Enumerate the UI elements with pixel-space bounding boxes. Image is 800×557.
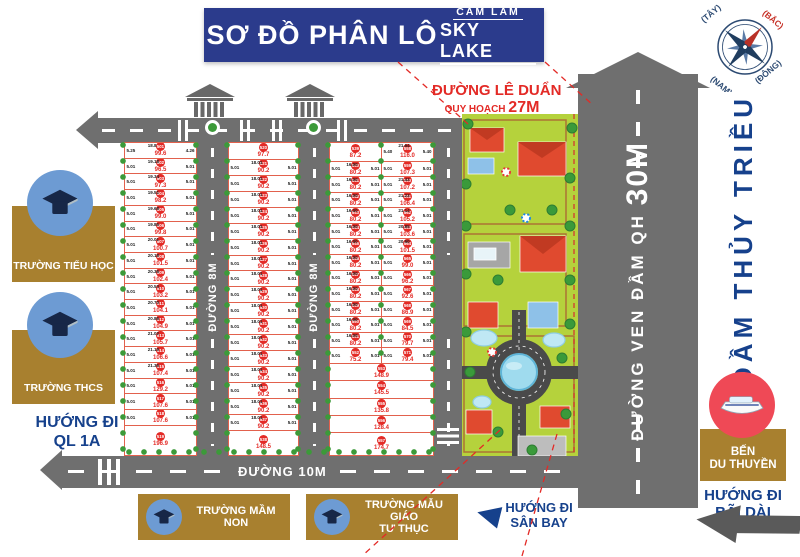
plot-row-567: 56792.65.015.01 bbox=[382, 286, 433, 302]
plot-dim-top: 18.01 bbox=[251, 320, 262, 325]
plot-badge: 554 bbox=[377, 381, 386, 390]
plot-row-521: 52190.218.015.015.01 bbox=[229, 160, 298, 176]
plot-dim-left: 5.01 bbox=[127, 384, 136, 389]
resort-area bbox=[462, 114, 578, 456]
plot-row-566: 56696.25.015.01 bbox=[382, 271, 433, 287]
plot-row-532: 53290.218.015.015.01 bbox=[229, 335, 298, 351]
plot-row-520: 52097.7 bbox=[229, 143, 298, 160]
lagoon-road-30m: ĐƯỜNG VEN ĐẦM QH 30M bbox=[578, 74, 698, 508]
plot-dim-left: 5.01 bbox=[231, 293, 240, 298]
plot-row-517: 517107.65.015.01 bbox=[125, 394, 196, 410]
tree-row-icon bbox=[324, 140, 332, 458]
graduation-cap-icon bbox=[151, 504, 177, 530]
plot-row-554: 554145.5 bbox=[330, 381, 433, 398]
le-duan-road-label: ĐƯỜNG LÊ DUẨN QUY HOẠCH 27M bbox=[432, 82, 552, 117]
plot-dim-top: 19.34 bbox=[148, 175, 159, 180]
lagoon-name: ĐẦM THỦY TRIỀU bbox=[728, 92, 759, 388]
plot-dim-top: 19.85 bbox=[148, 223, 159, 228]
plot-row-534: 53490.218.015.015.01 bbox=[229, 367, 298, 383]
plot-row-565: 56599.05.015.01 bbox=[382, 255, 433, 271]
public-building-icon bbox=[287, 84, 333, 118]
marina-icon bbox=[709, 372, 775, 438]
plot-row-511: 511104.120.705.015.01 bbox=[125, 300, 196, 316]
plot-badge: 518 bbox=[156, 410, 165, 418]
plot-block-c-bottom: 553148.9554145.5555135.8556128.4557174.7 bbox=[330, 363, 433, 455]
plot-row-531: 53190.218.015.015.01 bbox=[229, 319, 298, 335]
plot-dim-left: 5.01 bbox=[231, 246, 240, 251]
crosswalk bbox=[337, 120, 349, 141]
plot-dim-top: 21.02 bbox=[148, 332, 159, 337]
plot-row-513: 513105.721.025.015.01 bbox=[125, 331, 196, 347]
plot-row-503: 50397.319.345.015.01 bbox=[125, 174, 196, 190]
plot-dim-left: 5.01 bbox=[127, 212, 136, 217]
plot-row-558: 558116.021.645.405.40 bbox=[382, 143, 433, 162]
plot-row-551: 55180.216.005.015.01 bbox=[330, 333, 381, 349]
plot-row-553: 553148.9 bbox=[330, 364, 433, 381]
plot-dim-top: 16.00 bbox=[346, 287, 357, 292]
crosswalk bbox=[240, 120, 252, 141]
plot-dim-left: 5.01 bbox=[127, 259, 136, 264]
plot-row-527: 52790.218.015.015.01 bbox=[229, 256, 298, 272]
graduation-cap-icon bbox=[38, 181, 82, 225]
tree-row-icon bbox=[429, 140, 437, 458]
plot-row-508: 508101.520.185.015.01 bbox=[125, 253, 196, 269]
plot-dim-left: 5.01 bbox=[127, 196, 136, 201]
plot-row-547: 54780.216.005.015.01 bbox=[330, 271, 381, 287]
plot-badge: 565 bbox=[403, 255, 412, 263]
plot-dim-top: 20.53 bbox=[148, 285, 159, 290]
plot-row-529: 52990.218.015.015.01 bbox=[229, 287, 298, 303]
plot-row-544: 54480.216.005.015.01 bbox=[330, 224, 381, 240]
plot-badge: 567 bbox=[403, 286, 412, 294]
plot-dim-top: 18.01 bbox=[251, 288, 262, 293]
plot-row-539: 53987.2 bbox=[330, 143, 381, 162]
plot-block-c-left: 53987.254080.216.005.015.0154180.216.005… bbox=[330, 143, 381, 363]
plot-badge: 568 bbox=[403, 302, 412, 310]
plot-dim-top: 21.43 bbox=[398, 178, 409, 183]
kindergarten-card: TRƯỜNG MẦM NON bbox=[138, 494, 290, 540]
plot-dim-left: 5.01 bbox=[332, 198, 341, 203]
plot-dim-left: 5.01 bbox=[231, 421, 240, 426]
crosswalk bbox=[437, 428, 459, 444]
compass-south-label: (NAM) bbox=[709, 74, 735, 92]
plot-row-552: 55275.25.015.01 bbox=[330, 348, 381, 363]
plot-block-b: 52097.752190.218.015.015.0152290.218.015… bbox=[228, 142, 299, 456]
le-duan-name: ĐƯỜNG LÊ DUẨN bbox=[432, 82, 552, 99]
plot-area: 148.9 bbox=[330, 373, 433, 380]
plot-dim-left: 5.01 bbox=[231, 357, 240, 362]
plot-row-504: 50498.219.515.015.01 bbox=[125, 190, 196, 206]
brand-logo: CAM LÂM SKY LAKE bbox=[440, 6, 544, 65]
plot-row-514: 514106.621.195.015.01 bbox=[125, 347, 196, 363]
road-8m-2-label: ĐƯỜNG 8M bbox=[308, 262, 320, 331]
plot-row-502: 50296.519.185.015.01 bbox=[125, 159, 196, 175]
plot-row-568: 56886.95.015.01 bbox=[382, 302, 433, 318]
title-banner: SƠ ĐỒ PHÂN LÔ CAM LÂM SKY LAKE bbox=[204, 8, 544, 62]
airport-arrow-icon bbox=[475, 502, 503, 529]
ql1a-direction: HƯỚNG ĐI QL 1A bbox=[28, 413, 126, 451]
plot-row-562: 562105.221.145.015.01 bbox=[382, 208, 433, 224]
plot-dim-top: 19.51 bbox=[148, 191, 159, 196]
plot-dim-left: 5.01 bbox=[231, 373, 240, 378]
plot-row-550: 55080.216.005.015.01 bbox=[330, 317, 381, 333]
plot-badge: 571 bbox=[403, 348, 412, 356]
tree-row-icon bbox=[377, 140, 385, 362]
plot-dim-left: 5.01 bbox=[127, 416, 136, 421]
plot-dim-top: 18.01 bbox=[251, 336, 262, 341]
plot-row-555: 555135.8 bbox=[330, 399, 433, 416]
plot-dim-top: 21.19 bbox=[148, 348, 159, 353]
plot-dim-top: 16.00 bbox=[346, 256, 357, 261]
plot-dim-top: 20.36 bbox=[148, 270, 159, 275]
plot-dim-left: 5.01 bbox=[231, 309, 240, 314]
plot-dim-left: 5.01 bbox=[332, 167, 341, 172]
plot-dim-top: 20.86 bbox=[148, 317, 159, 322]
plot-dim-top: 18.01 bbox=[251, 257, 262, 262]
plot-dim-left: 5.25 bbox=[127, 149, 136, 154]
plot-badge: 556 bbox=[377, 416, 386, 425]
secondary-school-icon bbox=[27, 292, 93, 358]
plot-dim-top: 16.00 bbox=[346, 163, 357, 168]
plot-dim-top: 16.00 bbox=[346, 225, 357, 230]
plot-badge: 519 bbox=[156, 432, 165, 441]
plot-dim-left: 5.01 bbox=[332, 276, 341, 281]
plot-row-526: 52690.218.015.015.01 bbox=[229, 240, 298, 256]
plot-dim-left: 5.01 bbox=[332, 292, 341, 297]
plot-row-561: 561106.421.235.015.01 bbox=[382, 193, 433, 209]
secondary-school-label: TRƯỜNG THCS bbox=[24, 382, 103, 394]
plot-row-512: 512104.920.865.015.01 bbox=[125, 316, 196, 332]
plot-block-c-right: 558116.021.645.405.40559107.35.015.01560… bbox=[381, 143, 433, 363]
roundabout-tree-icon bbox=[205, 120, 220, 135]
plot-badge: 566 bbox=[403, 271, 412, 279]
plot-dim-left: 5.01 bbox=[127, 290, 136, 295]
plot-row-541: 54180.216.005.015.01 bbox=[330, 177, 381, 193]
plot-dim-top: 16.00 bbox=[346, 334, 357, 339]
plot-row-510: 510103.220.535.015.01 bbox=[125, 284, 196, 300]
plot-dim-left: 5.01 bbox=[127, 275, 136, 280]
plot-dim-top: 18.01 bbox=[251, 193, 262, 198]
tree-row-icon bbox=[119, 140, 127, 458]
private-kindergarten-icon bbox=[314, 499, 350, 535]
plot-row-545: 54580.216.005.015.01 bbox=[330, 239, 381, 255]
plot-badge: 552 bbox=[351, 348, 360, 356]
graduation-cap-icon bbox=[319, 504, 345, 530]
roundabout-tree-icon bbox=[306, 120, 321, 135]
tree-row-icon bbox=[124, 448, 436, 456]
plot-dim-left: 5.01 bbox=[127, 369, 136, 374]
le-duan-sub: QUY HOẠCH bbox=[445, 104, 509, 115]
plot-dim-top: 18.01 bbox=[251, 225, 262, 230]
plot-row-569: 56984.55.015.01 bbox=[382, 317, 433, 333]
kindergarten-label: TRƯỜNG MẦM NON bbox=[188, 505, 290, 529]
plot-dim-left: 5.01 bbox=[231, 262, 240, 267]
plot-row-509: 509102.420.365.015.01 bbox=[125, 269, 196, 285]
plot-dim-left: 5.01 bbox=[231, 405, 240, 410]
plot-row-518: 518107.65.015.01 bbox=[125, 410, 196, 426]
marina-label-2: DU THUYỀN bbox=[700, 459, 786, 472]
plot-dim-top: 16.00 bbox=[346, 178, 357, 183]
plot-row-549: 54980.216.005.015.01 bbox=[330, 302, 381, 318]
plot-dim-left: 5.01 bbox=[231, 277, 240, 282]
plot-badge: 559 bbox=[403, 162, 412, 170]
plot-dim-top: 21.23 bbox=[398, 194, 409, 199]
site-plan-stage: SƠ ĐỒ PHÂN LÔ CAM LÂM SKY LAKE (BẮC) (TÂ… bbox=[0, 0, 800, 557]
primary-school-label: TRƯỜNG TIỂU HỌC bbox=[13, 260, 114, 272]
plot-row-505: 50599.019.685.015.01 bbox=[125, 206, 196, 222]
plot-row-524: 52490.218.015.015.01 bbox=[229, 208, 298, 224]
plot-badge: 539 bbox=[351, 144, 360, 153]
plot-dim-top: 16.00 bbox=[346, 209, 357, 214]
plot-area: 196.9 bbox=[125, 441, 196, 448]
plot-dim-left: 5.01 bbox=[332, 354, 341, 359]
plot-row-540: 54080.216.005.015.01 bbox=[330, 162, 381, 178]
plot-row-536: 53690.218.015.015.01 bbox=[229, 399, 298, 415]
plot-row-506: 50699.819.855.015.01 bbox=[125, 222, 196, 238]
brand-name-bottom: SKY LAKE bbox=[440, 20, 536, 65]
plot-area: 87.2 bbox=[330, 153, 381, 160]
plot-row-535: 53590.218.015.015.01 bbox=[229, 383, 298, 399]
graduation-cap-icon bbox=[38, 303, 82, 347]
plot-dim-top: 20.01 bbox=[148, 238, 159, 243]
yacht-icon bbox=[719, 389, 765, 421]
crosswalk bbox=[178, 120, 190, 141]
plot-row-533: 53390.218.015.015.01 bbox=[229, 351, 298, 367]
plot-dim-left: 5.01 bbox=[127, 306, 136, 311]
plot-row-530: 53090.218.015.015.01 bbox=[229, 303, 298, 319]
plot-dim-top: 21.64 bbox=[398, 144, 409, 149]
plot-row-516: 516129.25.015.01 bbox=[125, 379, 196, 395]
plot-row-522: 52290.218.015.015.01 bbox=[229, 176, 298, 192]
plot-dim-top: 18.8 bbox=[148, 144, 157, 149]
compass-rose-icon: (BẮC) (TÂY) (NAM) (ĐÔNG) bbox=[698, 0, 796, 92]
plot-dim-left: 5.01 bbox=[332, 308, 341, 313]
plot-dim-top: 18.01 bbox=[251, 416, 262, 421]
plot-dim-left: 5.01 bbox=[127, 353, 136, 358]
plot-dim-top: 21.14 bbox=[398, 209, 409, 214]
plot-dim-left: 5.01 bbox=[127, 322, 136, 327]
plot-row-563: 563103.620.855.015.01 bbox=[382, 224, 433, 240]
plot-dim-top: 18.01 bbox=[251, 352, 262, 357]
plot-dim-top: 18.01 bbox=[251, 304, 262, 309]
plot-badge: 520 bbox=[259, 143, 268, 152]
tree-row-icon bbox=[294, 140, 302, 458]
road-10m-label: ĐƯỜNG 10M bbox=[232, 464, 333, 479]
plot-dim-top: 19.18 bbox=[148, 160, 159, 165]
crosswalk bbox=[98, 459, 124, 485]
private-kindergarten-card: TRƯỜNG MẪU GIÁOTƯ THỤC bbox=[306, 494, 458, 540]
plot-dim-left: 5.01 bbox=[332, 230, 341, 235]
plot-area: 128.4 bbox=[330, 425, 433, 432]
plot-dim-left: 5.01 bbox=[332, 261, 341, 266]
bottom-road-arrow-icon bbox=[40, 450, 62, 490]
plot-area: 135.8 bbox=[330, 408, 433, 415]
plot-dim-left: 5.01 bbox=[332, 245, 341, 250]
plot-dim-left: 5.01 bbox=[127, 243, 136, 248]
page-title: SƠ ĐỒ PHÂN LÔ bbox=[204, 20, 440, 51]
plot-dim-top: 18.01 bbox=[251, 177, 262, 182]
plot-dim-left: 5.01 bbox=[332, 323, 341, 328]
plot-row-515: 515107.421.365.015.01 bbox=[125, 363, 196, 379]
crosswalk bbox=[272, 120, 284, 141]
plot-dim-left: 5.01 bbox=[231, 389, 240, 394]
plot-row-525: 52590.218.015.015.01 bbox=[229, 224, 298, 240]
plot-row-542: 54280.216.005.015.01 bbox=[330, 193, 381, 209]
plot-dim-left: 5.01 bbox=[231, 230, 240, 235]
plot-dim-top: 16.00 bbox=[346, 194, 357, 199]
road-exit-arrow-icon bbox=[688, 498, 800, 554]
primary-school-icon bbox=[27, 170, 93, 236]
private-kindergarten-label: TRƯỜNG MẪU GIÁOTƯ THỤC bbox=[356, 499, 458, 535]
plot-dim-top: 18.01 bbox=[251, 272, 262, 277]
access-road bbox=[434, 138, 462, 456]
plot-dim-top: 16.00 bbox=[346, 240, 357, 245]
plot-row-501: 50199.618.85.254.26 bbox=[125, 143, 196, 159]
plot-row-507: 507100.720.015.015.01 bbox=[125, 237, 196, 253]
plot-dim-left: 5.01 bbox=[231, 214, 240, 219]
plot-dim-left: 5.01 bbox=[127, 165, 136, 170]
plot-dim-top: 16.00 bbox=[346, 303, 357, 308]
lagoon-road-label: ĐƯỜNG VEN ĐẦM QH 30M bbox=[621, 141, 655, 441]
plot-row-564: 564101.520.505.015.01 bbox=[382, 239, 433, 255]
plot-row-543: 54380.216.005.015.01 bbox=[330, 208, 381, 224]
plot-dim-top: 20.50 bbox=[398, 240, 409, 245]
plot-dim-left: 5.01 bbox=[127, 337, 136, 342]
plot-row-548: 54880.216.005.015.01 bbox=[330, 286, 381, 302]
plot-dim-top: 18.01 bbox=[251, 241, 262, 246]
plot-dim-top: 18.01 bbox=[251, 368, 262, 373]
plot-badge: 516 bbox=[156, 379, 165, 387]
plot-row-560: 560107.221.435.015.01 bbox=[382, 177, 433, 193]
plot-badge: 570 bbox=[403, 333, 412, 341]
kindergarten-icon bbox=[146, 499, 182, 535]
plot-dim-left: 5.01 bbox=[332, 183, 341, 188]
plot-row-556: 556128.4 bbox=[330, 416, 433, 433]
plot-row-559: 559107.35.015.01 bbox=[382, 162, 433, 178]
tree-row-icon bbox=[192, 140, 200, 458]
plot-dim-top: 20.18 bbox=[148, 254, 159, 259]
plot-row-546: 54680.216.005.015.01 bbox=[330, 255, 381, 271]
plot-badge: 569 bbox=[403, 317, 412, 325]
plot-area: 145.5 bbox=[330, 390, 433, 397]
plot-dim-left: 5.01 bbox=[231, 198, 240, 203]
plot-area: 97.7 bbox=[229, 152, 298, 159]
road-8m-1-label: ĐƯỜNG 8M bbox=[207, 262, 219, 331]
plot-dim-left: 5.01 bbox=[231, 182, 240, 187]
marina-label-1: BẾN bbox=[700, 446, 786, 459]
compass-west-label: (TÂY) bbox=[698, 1, 723, 24]
plot-dim-left: 5.01 bbox=[231, 166, 240, 171]
plot-badge: 517 bbox=[156, 394, 165, 402]
plot-dim-top: 18.01 bbox=[251, 209, 262, 214]
plot-badge: 555 bbox=[377, 399, 386, 408]
public-building-icon bbox=[187, 84, 233, 118]
plot-dim-top: 16.00 bbox=[346, 318, 357, 323]
plot-dim-left: 5.01 bbox=[231, 325, 240, 330]
plot-dim-top: 16.00 bbox=[346, 272, 357, 277]
brand-name-top: CAM LÂM bbox=[453, 6, 523, 20]
plot-dim-top: 18.01 bbox=[251, 384, 262, 389]
plot-dim-left: 5.01 bbox=[332, 339, 341, 344]
plot-dim-left: 5.01 bbox=[231, 341, 240, 346]
plot-badge: 557 bbox=[377, 436, 386, 445]
top-road-arrow-icon bbox=[76, 111, 98, 149]
plot-badge: 501 bbox=[156, 143, 165, 151]
plot-dim-top: 21.36 bbox=[148, 364, 159, 369]
plot-row-570: 57079.75.015.01 bbox=[382, 333, 433, 349]
plot-dim-top: 19.68 bbox=[148, 207, 159, 212]
tree-row-icon bbox=[223, 140, 231, 458]
plot-dim-top: 20.70 bbox=[148, 301, 159, 306]
le-duan-size: 27M bbox=[508, 99, 539, 116]
plot-row-571: 57179.45.015.01 bbox=[382, 348, 433, 363]
plot-dim-top: 18.01 bbox=[251, 161, 262, 166]
plot-badge: 553 bbox=[377, 364, 386, 373]
plot-block-a: 50199.618.85.254.2650296.519.185.015.015… bbox=[124, 142, 197, 456]
airport-direction: HƯỚNG ĐI SÂN BAY bbox=[504, 500, 574, 530]
plot-row-528: 52890.218.015.015.01 bbox=[229, 271, 298, 287]
plot-badge: 538 bbox=[259, 435, 268, 444]
plot-dim-left: 5.01 bbox=[127, 227, 136, 232]
plot-dim-left: 5.01 bbox=[127, 400, 136, 405]
plot-dim-left: 5.01 bbox=[127, 180, 136, 185]
plot-dim-top: 18.01 bbox=[251, 400, 262, 405]
plot-row-523: 52390.218.015.015.01 bbox=[229, 192, 298, 208]
plot-row-537: 53790.218.015.015.01 bbox=[229, 415, 298, 431]
plot-dim-top: 20.85 bbox=[398, 225, 409, 230]
plot-dim-left: 5.01 bbox=[332, 214, 341, 219]
